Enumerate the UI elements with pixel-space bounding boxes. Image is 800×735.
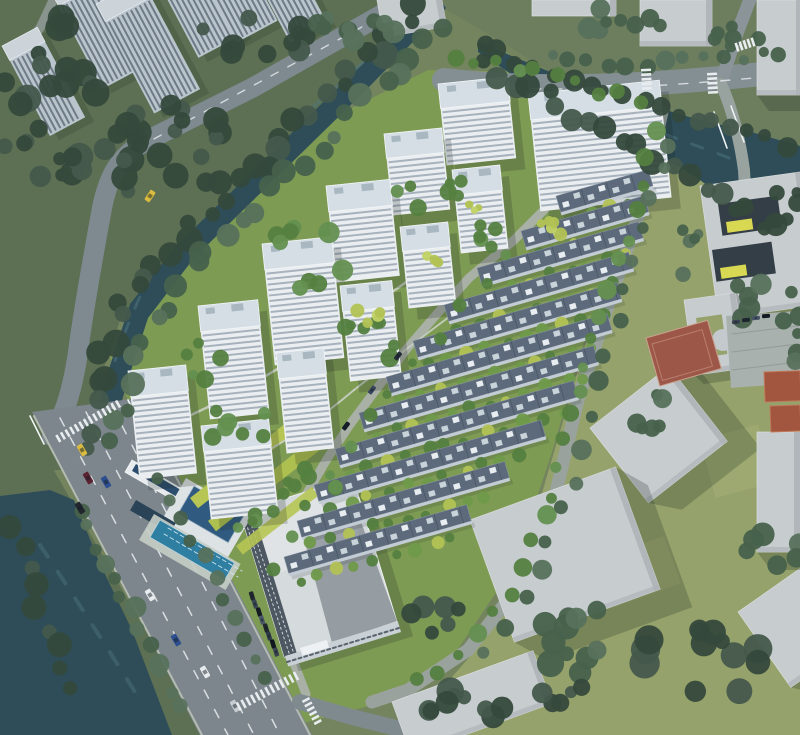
tclus-15 <box>30 166 51 187</box>
small-court-2 <box>770 405 800 432</box>
trees-main-road-east <box>151 472 163 484</box>
tclus-39 <box>440 617 455 632</box>
tower-10 <box>276 347 344 465</box>
car-20 <box>732 320 740 325</box>
tclus-35 <box>350 304 364 318</box>
rendering-canvas <box>0 0 800 735</box>
trees-canal-ne-south <box>476 53 491 68</box>
aerial-development-rendering <box>0 0 800 735</box>
trees-spine-flank <box>500 250 511 261</box>
tclus-28 <box>405 180 416 191</box>
trees-site-north <box>448 50 465 67</box>
crosswalk-top-2 <box>707 74 717 75</box>
car-21 <box>742 318 750 323</box>
tclus-31 <box>181 349 193 361</box>
small-court-1 <box>764 371 800 402</box>
trees-road-east-east-side <box>660 138 676 154</box>
tclus-33 <box>278 488 290 500</box>
car-23 <box>762 314 770 319</box>
forest-northwest <box>147 143 173 169</box>
trees-road-tr-verge <box>548 50 558 60</box>
car-22 <box>752 316 760 321</box>
trees-road-east-west-side <box>647 121 666 140</box>
crosswalk-top-1 <box>641 70 651 71</box>
trees-canal-east-bank <box>434 19 453 38</box>
